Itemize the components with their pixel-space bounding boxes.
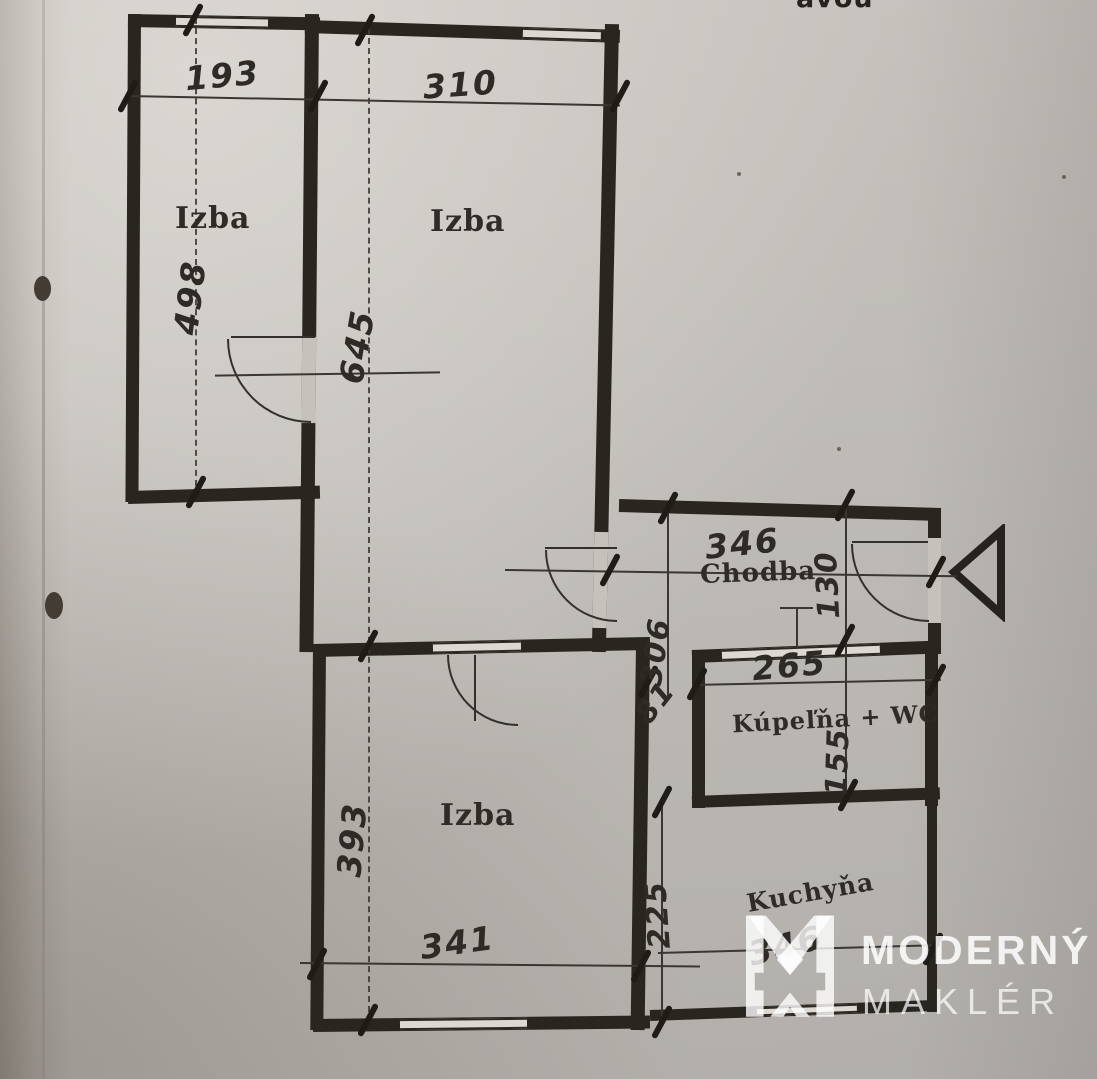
dim-label-izba-left-height: 498 — [165, 250, 215, 344]
room-label-izba-left: Izba — [175, 201, 250, 236]
dim-label-kupelna-height: 155 — [819, 726, 856, 797]
door-arc — [227, 339, 311, 423]
room-label-izba-bottom: Izba — [440, 798, 515, 833]
window — [400, 1018, 527, 1030]
wall — [692, 787, 940, 808]
wall — [128, 486, 320, 504]
dim-label-izba-left-width: 193 — [183, 53, 261, 98]
dim-label-izba-bottom-height: 393 — [329, 793, 376, 886]
door-opening — [433, 641, 521, 654]
entrance-door-arc — [851, 544, 929, 622]
window — [523, 28, 601, 41]
room-label-izba-main: Izba — [430, 204, 505, 239]
door-marker — [780, 607, 813, 609]
door-leaf — [545, 547, 617, 549]
watermark-tagline: MAKLÉR — [862, 981, 1064, 1023]
dim-label-izba-main-width: 310 — [422, 62, 499, 106]
floor-plan: 193 310 498 645 346 130 306 265 81 155 3… — [0, 0, 1097, 1079]
entrance-door-leaf — [852, 541, 928, 543]
door-arc — [545, 550, 617, 622]
brand-mark-icon — [735, 909, 845, 1019]
wall — [305, 20, 620, 43]
door-arc — [447, 655, 518, 726]
entrance-arrow-icon — [945, 524, 1009, 622]
door-leaf — [231, 336, 315, 338]
watermark-logo: MODERNÝ MAKLÉR — [735, 905, 1085, 1035]
dim-label-izba-main-height: 645 — [330, 299, 384, 394]
door-marker — [796, 608, 798, 648]
room-label-chodba: Chodba — [700, 556, 817, 590]
room-label-kupelna: Kúpeľňa + WC — [731, 699, 939, 739]
dim-label-kuchyna-side: 225 — [638, 878, 678, 950]
wall — [128, 14, 320, 30]
watermark-brand: MODERNÝ — [861, 927, 1092, 974]
dim-label-kupelna-width: 265 — [750, 643, 828, 688]
dim-label-izba-bottom-width: 341 — [418, 918, 498, 967]
